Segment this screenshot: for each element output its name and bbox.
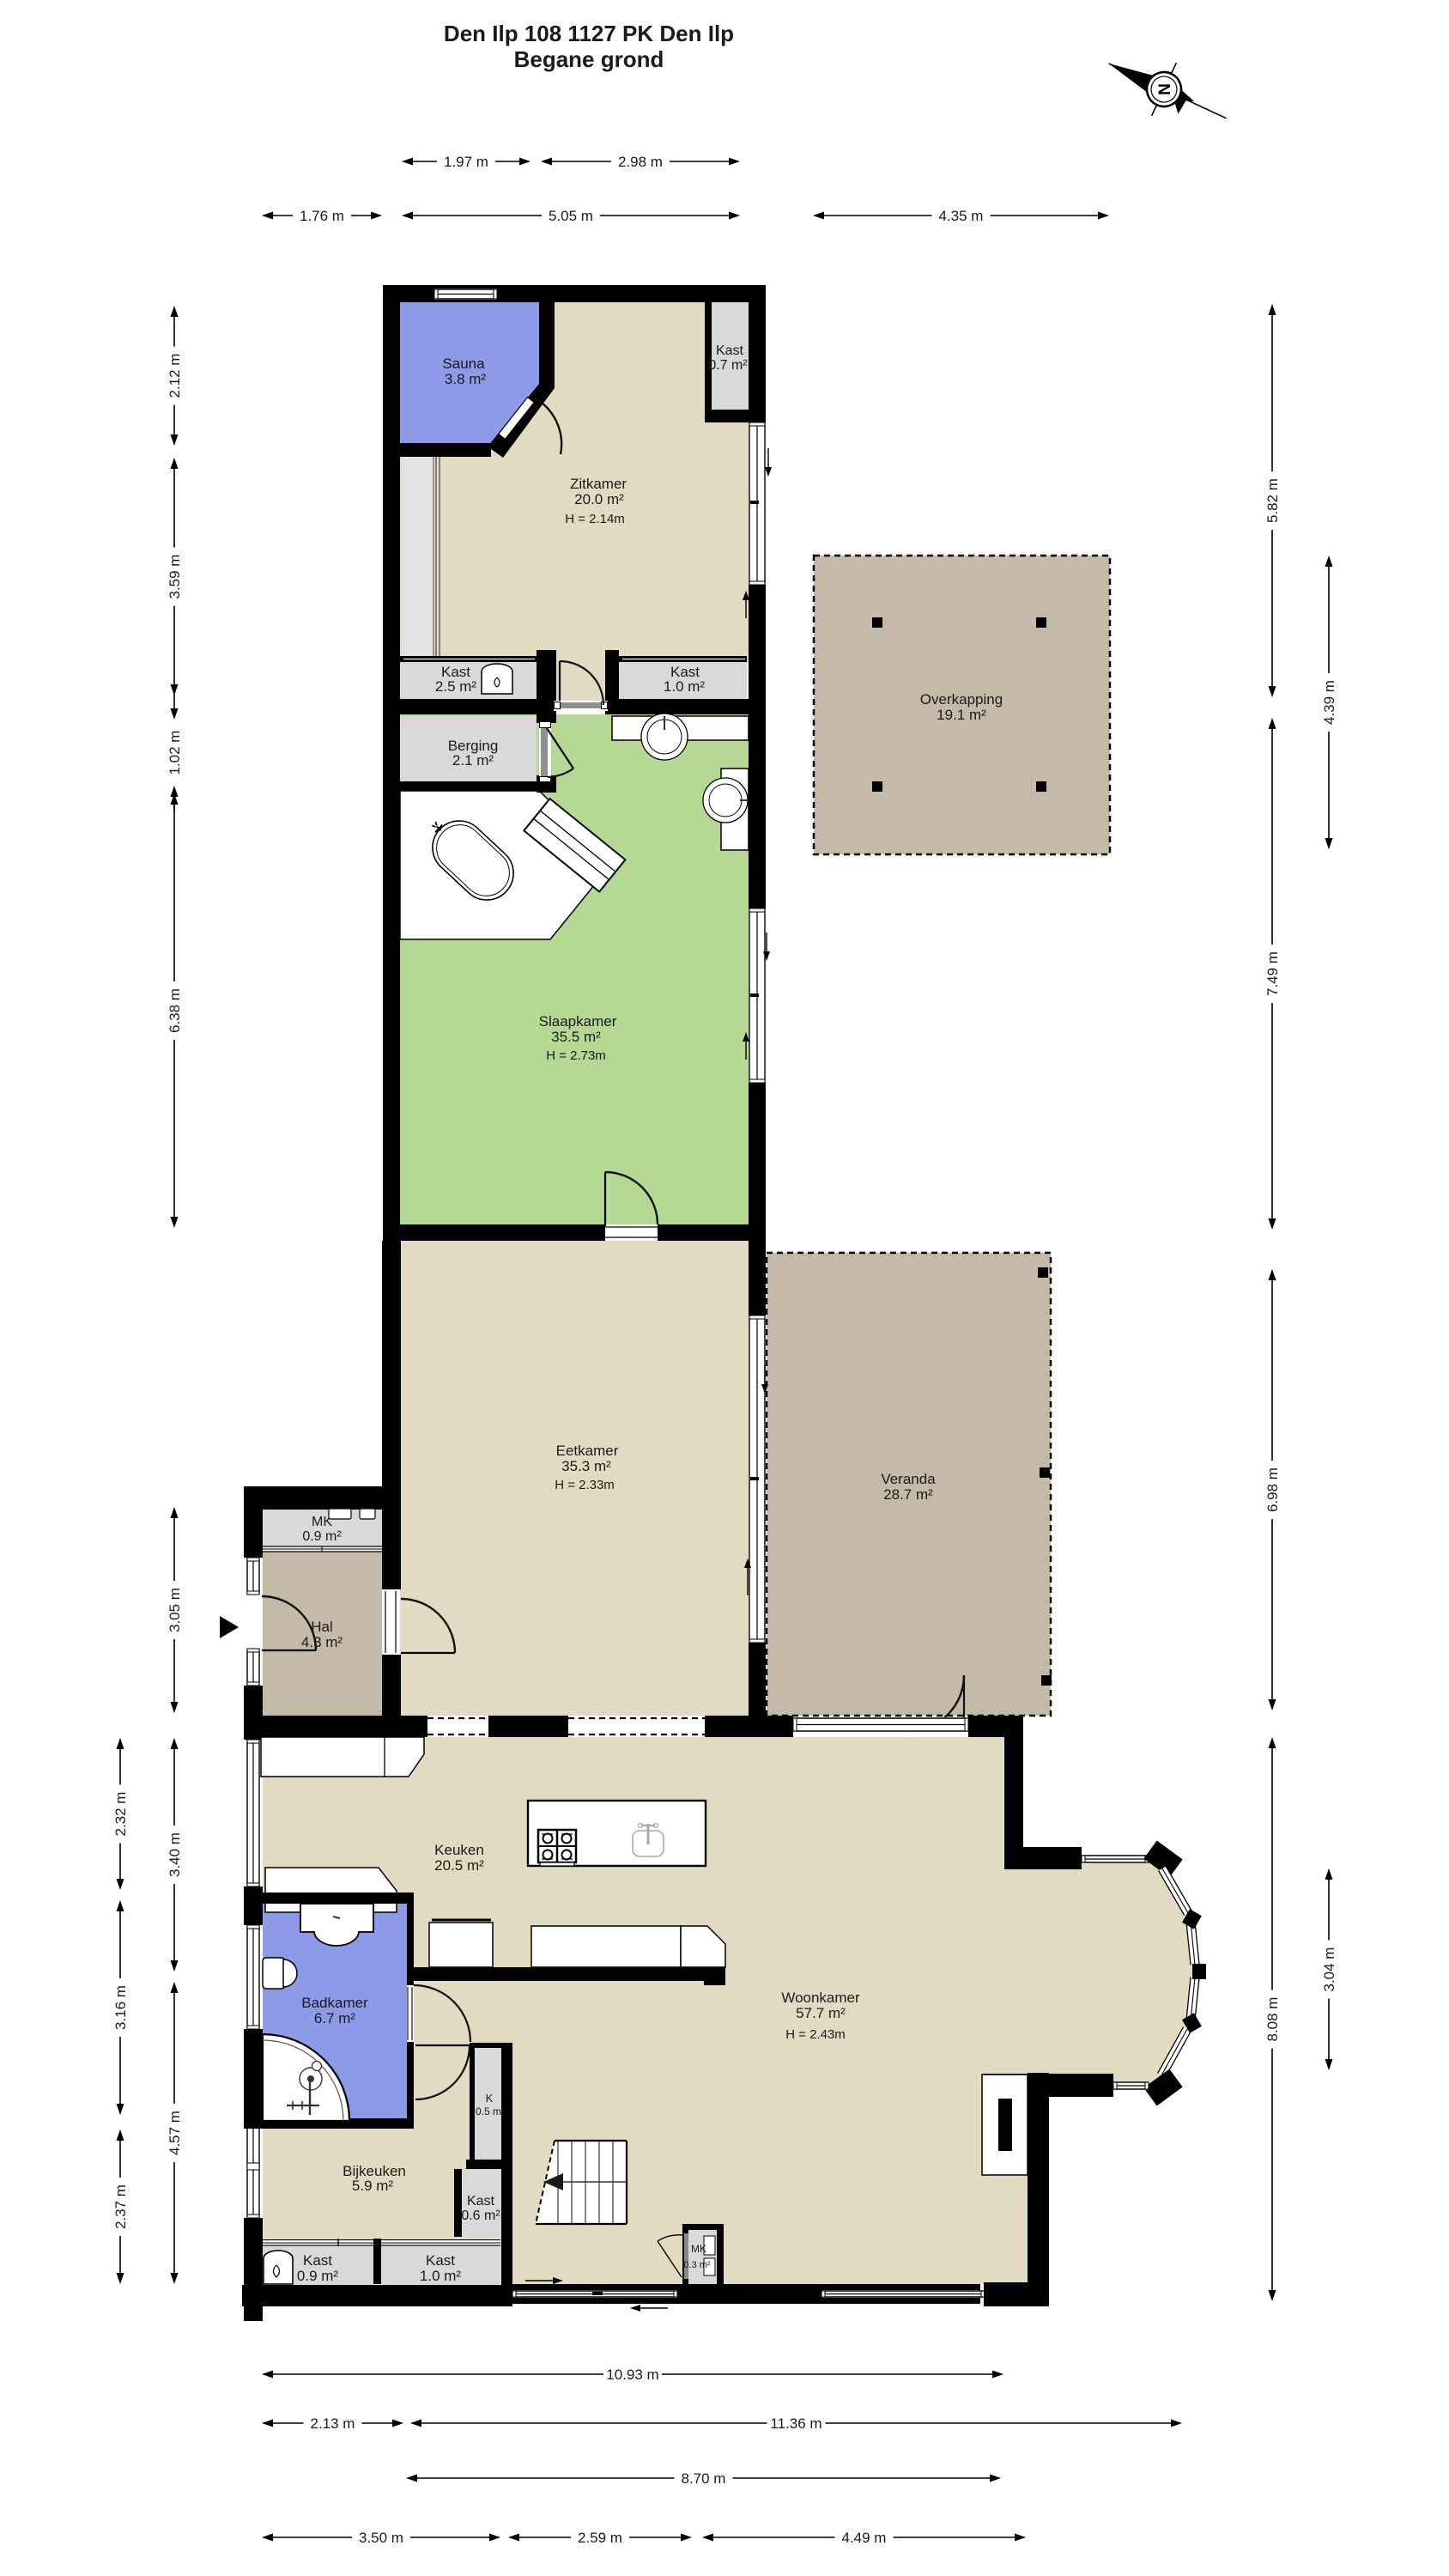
svg-text:35.5 m²: 35.5 m² — [551, 1029, 601, 1045]
svg-text:3.50 m: 3.50 m — [359, 2530, 403, 2546]
svg-text:8.08 m: 8.08 m — [1264, 1997, 1281, 2042]
svg-text:K: K — [486, 2092, 494, 2105]
svg-text:7.49 m: 7.49 m — [1264, 951, 1281, 996]
svg-text:6.38 m: 6.38 m — [167, 988, 183, 1033]
svg-text:1.97 m: 1.97 m — [444, 154, 488, 170]
svg-text:Den Ilp 108 1127 PK Den Ilp: Den Ilp 108 1127 PK Den Ilp — [444, 21, 734, 46]
svg-text:2.13 m: 2.13 m — [311, 2415, 355, 2432]
svg-text:Badkamer: Badkamer — [301, 1995, 368, 2011]
svg-text:0.7 m²: 0.7 m² — [708, 358, 748, 373]
svg-text:0.5 m²: 0.5 m² — [476, 2105, 505, 2117]
svg-text:1.02 m: 1.02 m — [167, 731, 183, 775]
svg-text:1.0 m²: 1.0 m² — [664, 678, 706, 695]
svg-text:Sauna: Sauna — [442, 355, 485, 372]
svg-text:1.0 m²: 1.0 m² — [420, 2268, 462, 2284]
svg-text:2.1 m²: 2.1 m² — [452, 752, 494, 769]
svg-text:20.5 m²: 20.5 m² — [434, 1857, 484, 1874]
svg-text:Hal: Hal — [311, 1619, 333, 1635]
svg-text:Eetkamer: Eetkamer — [556, 1443, 619, 1459]
svg-text:2.98 m: 2.98 m — [618, 154, 663, 170]
svg-text:0.3 m²: 0.3 m² — [683, 2260, 711, 2270]
svg-text:H = 2.43m: H = 2.43m — [785, 2027, 846, 2042]
svg-text:6.98 m: 6.98 m — [1264, 1467, 1281, 1512]
svg-text:4.39 m: 4.39 m — [1321, 680, 1337, 725]
svg-text:28.7 m²: 28.7 m² — [883, 1486, 933, 1503]
svg-text:Kast: Kast — [426, 2252, 455, 2269]
svg-text:Zitkamer: Zitkamer — [570, 476, 627, 492]
svg-text:2.12 m: 2.12 m — [167, 354, 183, 398]
svg-text:57.7 m²: 57.7 m² — [796, 2005, 846, 2021]
svg-text:MK: MK — [691, 2243, 706, 2255]
svg-text:2.32 m: 2.32 m — [112, 1792, 129, 1837]
svg-text:N: N — [1155, 83, 1173, 95]
svg-text:H = 2.73m: H = 2.73m — [546, 1048, 606, 1063]
svg-text:35.3 m²: 35.3 m² — [561, 1458, 611, 1474]
svg-text:Kast: Kast — [716, 343, 744, 358]
svg-text:11.36 m: 11.36 m — [770, 2415, 822, 2432]
svg-text:20.0 m²: 20.0 m² — [574, 491, 624, 507]
svg-text:Slaapkamer: Slaapkamer — [539, 1013, 617, 1030]
svg-text:4.3 m²: 4.3 m² — [301, 1634, 343, 1650]
svg-text:Kast: Kast — [303, 2252, 332, 2269]
svg-text:8.70 m: 8.70 m — [682, 2470, 726, 2487]
svg-text:0.9 m²: 0.9 m² — [302, 1529, 342, 1544]
svg-text:H = 2.33m: H = 2.33m — [555, 1478, 615, 1492]
svg-text:3.05 m: 3.05 m — [167, 1588, 183, 1632]
svg-text:Veranda: Veranda — [881, 1471, 936, 1487]
svg-text:3.04 m: 3.04 m — [1321, 1947, 1337, 1992]
svg-text:Overkapping: Overkapping — [920, 691, 1003, 708]
svg-text:3.40 m: 3.40 m — [167, 1832, 183, 1877]
svg-text:H = 2.14m: H = 2.14m — [565, 512, 625, 526]
svg-text:1.76 m: 1.76 m — [300, 208, 344, 224]
svg-text:Begane grond: Begane grond — [514, 46, 664, 72]
svg-text:2.59 m: 2.59 m — [578, 2530, 622, 2546]
svg-text:Kast: Kast — [467, 2194, 495, 2208]
svg-text:4.57 m: 4.57 m — [167, 2111, 183, 2155]
svg-text:3.8 m²: 3.8 m² — [445, 371, 487, 387]
svg-text:5.05 m: 5.05 m — [549, 208, 593, 224]
svg-text:0.6 m²: 0.6 m² — [461, 2208, 500, 2223]
svg-text:2.37 m: 2.37 m — [112, 2184, 129, 2229]
svg-text:2.5 m²: 2.5 m² — [435, 678, 477, 695]
svg-text:Keuken: Keuken — [434, 1842, 484, 1858]
svg-text:4.35 m: 4.35 m — [939, 208, 984, 224]
svg-text:5.82 m: 5.82 m — [1264, 478, 1281, 523]
svg-text:4.49 m: 4.49 m — [842, 2530, 887, 2546]
svg-text:5.9 m²: 5.9 m² — [352, 2178, 394, 2194]
svg-text:3.16 m: 3.16 m — [112, 1985, 129, 2030]
svg-text:10.93 m: 10.93 m — [606, 2366, 658, 2383]
svg-text:3.59 m: 3.59 m — [167, 555, 183, 599]
svg-text:19.1 m²: 19.1 m² — [937, 707, 986, 723]
svg-text:0.9 m²: 0.9 m² — [297, 2268, 339, 2284]
svg-text:Woonkamer: Woonkamer — [781, 1990, 860, 2006]
svg-text:6.7 m²: 6.7 m² — [314, 2010, 356, 2026]
